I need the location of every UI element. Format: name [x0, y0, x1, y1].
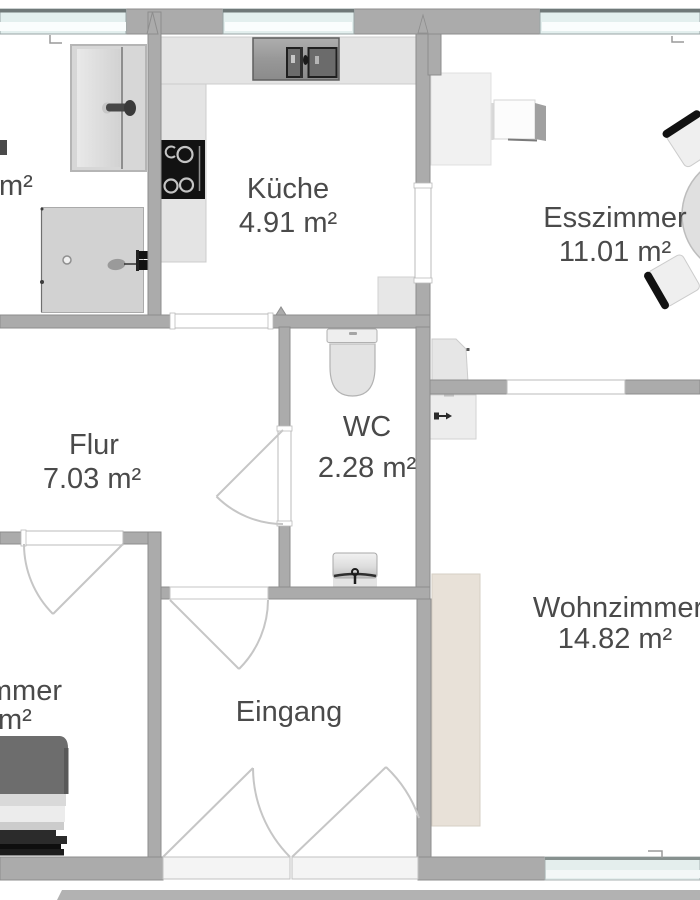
svg-text:mmer: mmer [0, 675, 62, 707]
svg-text:Esszimmer: Esszimmer [543, 202, 687, 234]
svg-text:7.03 m²: 7.03 m² [43, 463, 142, 495]
svg-text:m²: m² [0, 170, 33, 202]
svg-text:WC: WC [343, 411, 391, 443]
svg-text:Flur: Flur [69, 429, 119, 461]
svg-text:11.01 m²: 11.01 m² [559, 236, 672, 268]
svg-text:m²: m² [0, 704, 32, 736]
svg-text:2.28 m²: 2.28 m² [318, 452, 417, 484]
svg-text:Eingang: Eingang [236, 696, 342, 728]
svg-text:Wohnzimmer: Wohnzimmer [533, 592, 700, 624]
svg-text:Küche: Küche [247, 173, 329, 205]
svg-text:14.82 m²: 14.82 m² [558, 623, 673, 655]
svg-text:4.91 m²: 4.91 m² [239, 207, 338, 239]
